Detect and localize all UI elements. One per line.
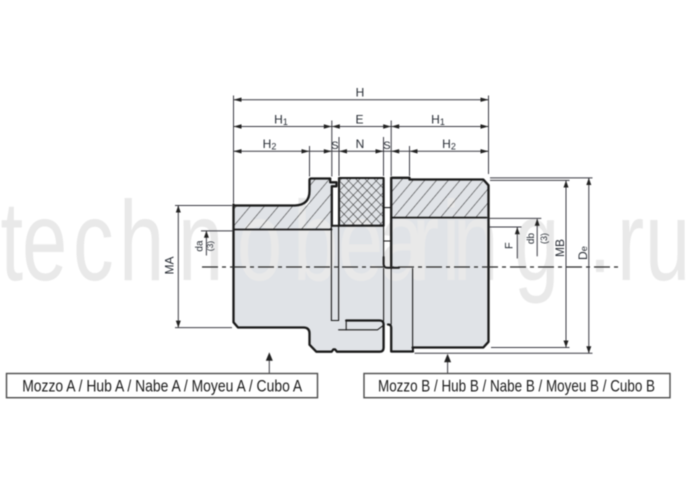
svg-text:H: H [356, 86, 365, 100]
svg-text:da: da [195, 240, 206, 252]
svg-text:De: De [576, 246, 590, 260]
svg-text:Mozzo A / Hub A / Nabe A / Moy: Mozzo A / Hub A / Nabe A / Moyeu A / Cub… [22, 377, 302, 395]
svg-text:N: N [356, 137, 365, 151]
svg-text:S: S [383, 140, 390, 152]
svg-text:MA: MA [163, 257, 177, 275]
svg-text:S: S [331, 140, 338, 152]
svg-text:E: E [355, 112, 363, 126]
svg-text:F: F [503, 242, 515, 249]
svg-text:MB: MB [553, 239, 567, 257]
svg-text:(3): (3) [205, 241, 215, 252]
svg-text:Mozzo B / Hub B / Nabe B / Moy: Mozzo B / Hub B / Nabe B / Moyeu B / Cub… [378, 377, 655, 395]
svg-text:db: db [526, 233, 537, 245]
svg-text:(3): (3) [539, 233, 549, 244]
